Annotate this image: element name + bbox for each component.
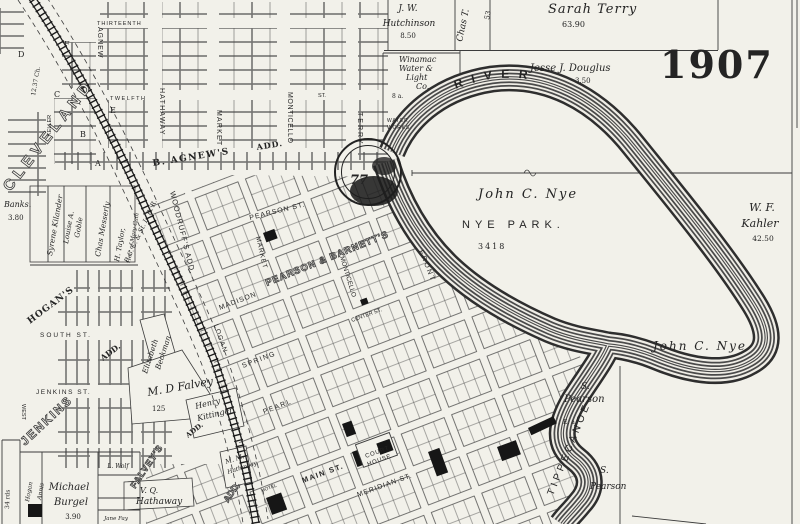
block-letter-d: D bbox=[18, 50, 24, 59]
water-works-2: WORKS bbox=[387, 125, 410, 131]
park-owner: John C. Nye bbox=[475, 187, 578, 202]
block-letter-b: B bbox=[80, 130, 86, 139]
block-letter-e: E bbox=[110, 106, 116, 115]
water-works-1: WATER bbox=[387, 118, 409, 124]
block-letter-f: F bbox=[64, 40, 70, 49]
parcel-kahler-acres: 42.50 bbox=[752, 234, 774, 243]
parcel-falvey-acres: 125 bbox=[152, 405, 165, 413]
parcel-hogan-small: Hogan bbox=[24, 481, 35, 503]
seal-number: 77 bbox=[350, 173, 368, 188]
park-number: 3418 bbox=[478, 242, 506, 251]
parcel-pearson-w: Pearson bbox=[563, 394, 605, 405]
parcel-vq-1: V. Q. bbox=[140, 486, 158, 495]
map-canvas: 77 1907 Sarah Terry 63.90 J. W. Hutchins… bbox=[0, 0, 800, 524]
plat-map-1907: 77 1907 Sarah Terry 63.90 J. W. Hutchins… bbox=[0, 0, 800, 524]
parcel-hutchinson-acres: 8.50 bbox=[400, 32, 416, 40]
parcel-kahler-1: W. F. bbox=[749, 201, 775, 214]
street-monticello-north: MONTICELLO bbox=[286, 92, 293, 144]
keller-label: KELLER bbox=[47, 115, 53, 136]
parcel-chas-t-acres: 53 bbox=[483, 10, 493, 20]
parcel-pearson-w-note: E. a. bbox=[563, 419, 577, 426]
parcel-kahler-2: Kahler bbox=[740, 217, 779, 230]
parcel-nye-south: John C. Nye bbox=[650, 339, 747, 353]
street-west: WEST bbox=[20, 404, 26, 421]
parcel-fay: Jane Fay bbox=[103, 516, 129, 522]
parcel-burgel-1: Michael bbox=[48, 482, 90, 493]
church-building bbox=[28, 504, 42, 517]
parcel-burgel-acres: 3.90 bbox=[65, 513, 81, 521]
parcel-pearson-e: Pearson bbox=[589, 482, 627, 492]
street-market-north: MARKET bbox=[215, 110, 222, 146]
parcel-water-co-1: Winamac bbox=[399, 55, 437, 64]
parcel-banks-acres: 3.80 bbox=[8, 214, 24, 222]
parcel-water-co-2: Water & bbox=[399, 64, 433, 73]
chain-measure: 12.37 Ch. bbox=[30, 66, 42, 96]
rods-note: 34 rds bbox=[4, 489, 12, 509]
street-st-small: ST. bbox=[318, 93, 326, 99]
street-twelfth: TWELFTH bbox=[110, 96, 146, 102]
map-year: 1907 bbox=[660, 42, 774, 87]
block-letter-a: A bbox=[94, 159, 101, 168]
parcel-pearson-e-initial: S. bbox=[600, 466, 609, 476]
parcel-water-co-4: Co. bbox=[416, 82, 429, 91]
parcel-pearson-w-initial: S. bbox=[581, 382, 590, 392]
parcel-hutchinson-1: J. W. bbox=[396, 4, 417, 14]
parcel-chas-t: Chas T. bbox=[455, 8, 472, 43]
parcel-burgel-2: Burgel bbox=[53, 497, 88, 508]
parcel-hutchinson-2: Hutchinson bbox=[382, 19, 436, 29]
street-south: SOUTH ST. bbox=[40, 332, 92, 339]
parcel-messerly: Chas Messerly bbox=[93, 200, 112, 257]
parcel-water-co-3: Light bbox=[405, 73, 428, 82]
parcel-jesse-douglus-acres: 3.50 bbox=[575, 77, 591, 85]
park-name: NYE PARK. bbox=[462, 219, 565, 231]
parcel-sarah-terry-acres: 63.90 bbox=[562, 20, 585, 29]
parcel-jesse-douglus: Jesse J. Douglus bbox=[528, 63, 611, 74]
block-letter-c: C bbox=[54, 90, 60, 99]
parcel-water-co-acres: 8 a. bbox=[392, 93, 403, 100]
street-agnew: AGNEW bbox=[96, 27, 103, 58]
street-terry: TERRY bbox=[356, 112, 363, 146]
parcel-vq-2: Hathaway bbox=[135, 497, 183, 507]
parcel-wolf: L. Wolf bbox=[106, 463, 130, 470]
street-hathaway: HATHAWAY bbox=[158, 88, 165, 136]
parcel-banks: Banks. bbox=[3, 200, 31, 209]
parcel-sarah-terry: Sarah Terry bbox=[548, 2, 637, 17]
parcel-goble-2: Goble bbox=[73, 217, 84, 239]
parcel-annis-small: Annis bbox=[36, 482, 46, 501]
